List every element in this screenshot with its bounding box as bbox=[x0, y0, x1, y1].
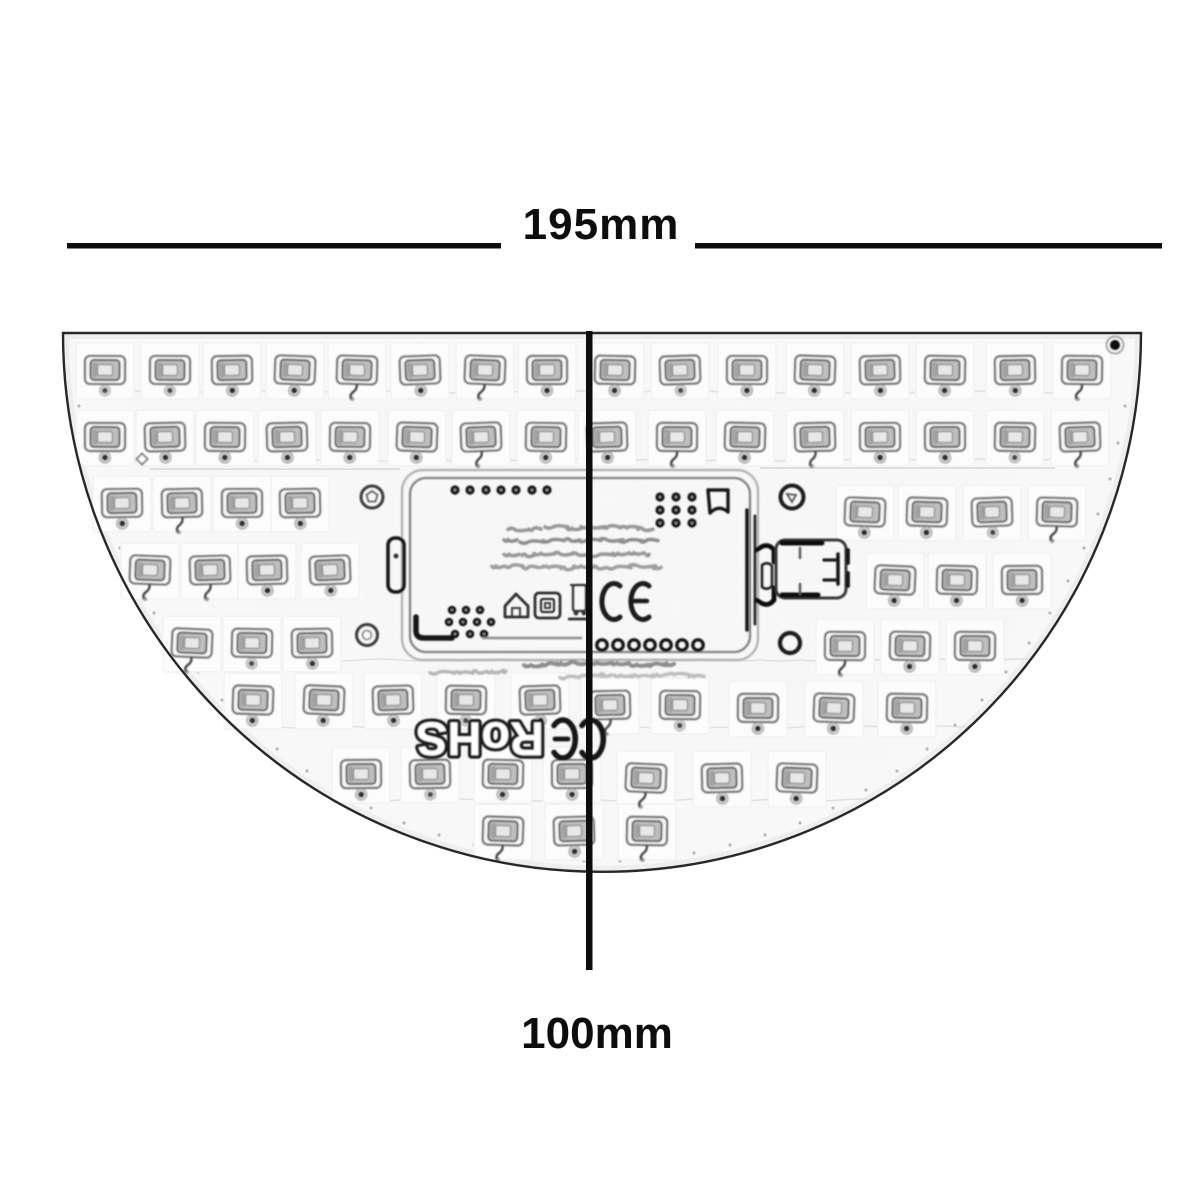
svg-text:195mm: 195mm bbox=[523, 200, 680, 249]
svg-text:100mm: 100mm bbox=[521, 1009, 673, 1058]
svg-text:RoHS: RoHS bbox=[416, 713, 544, 766]
